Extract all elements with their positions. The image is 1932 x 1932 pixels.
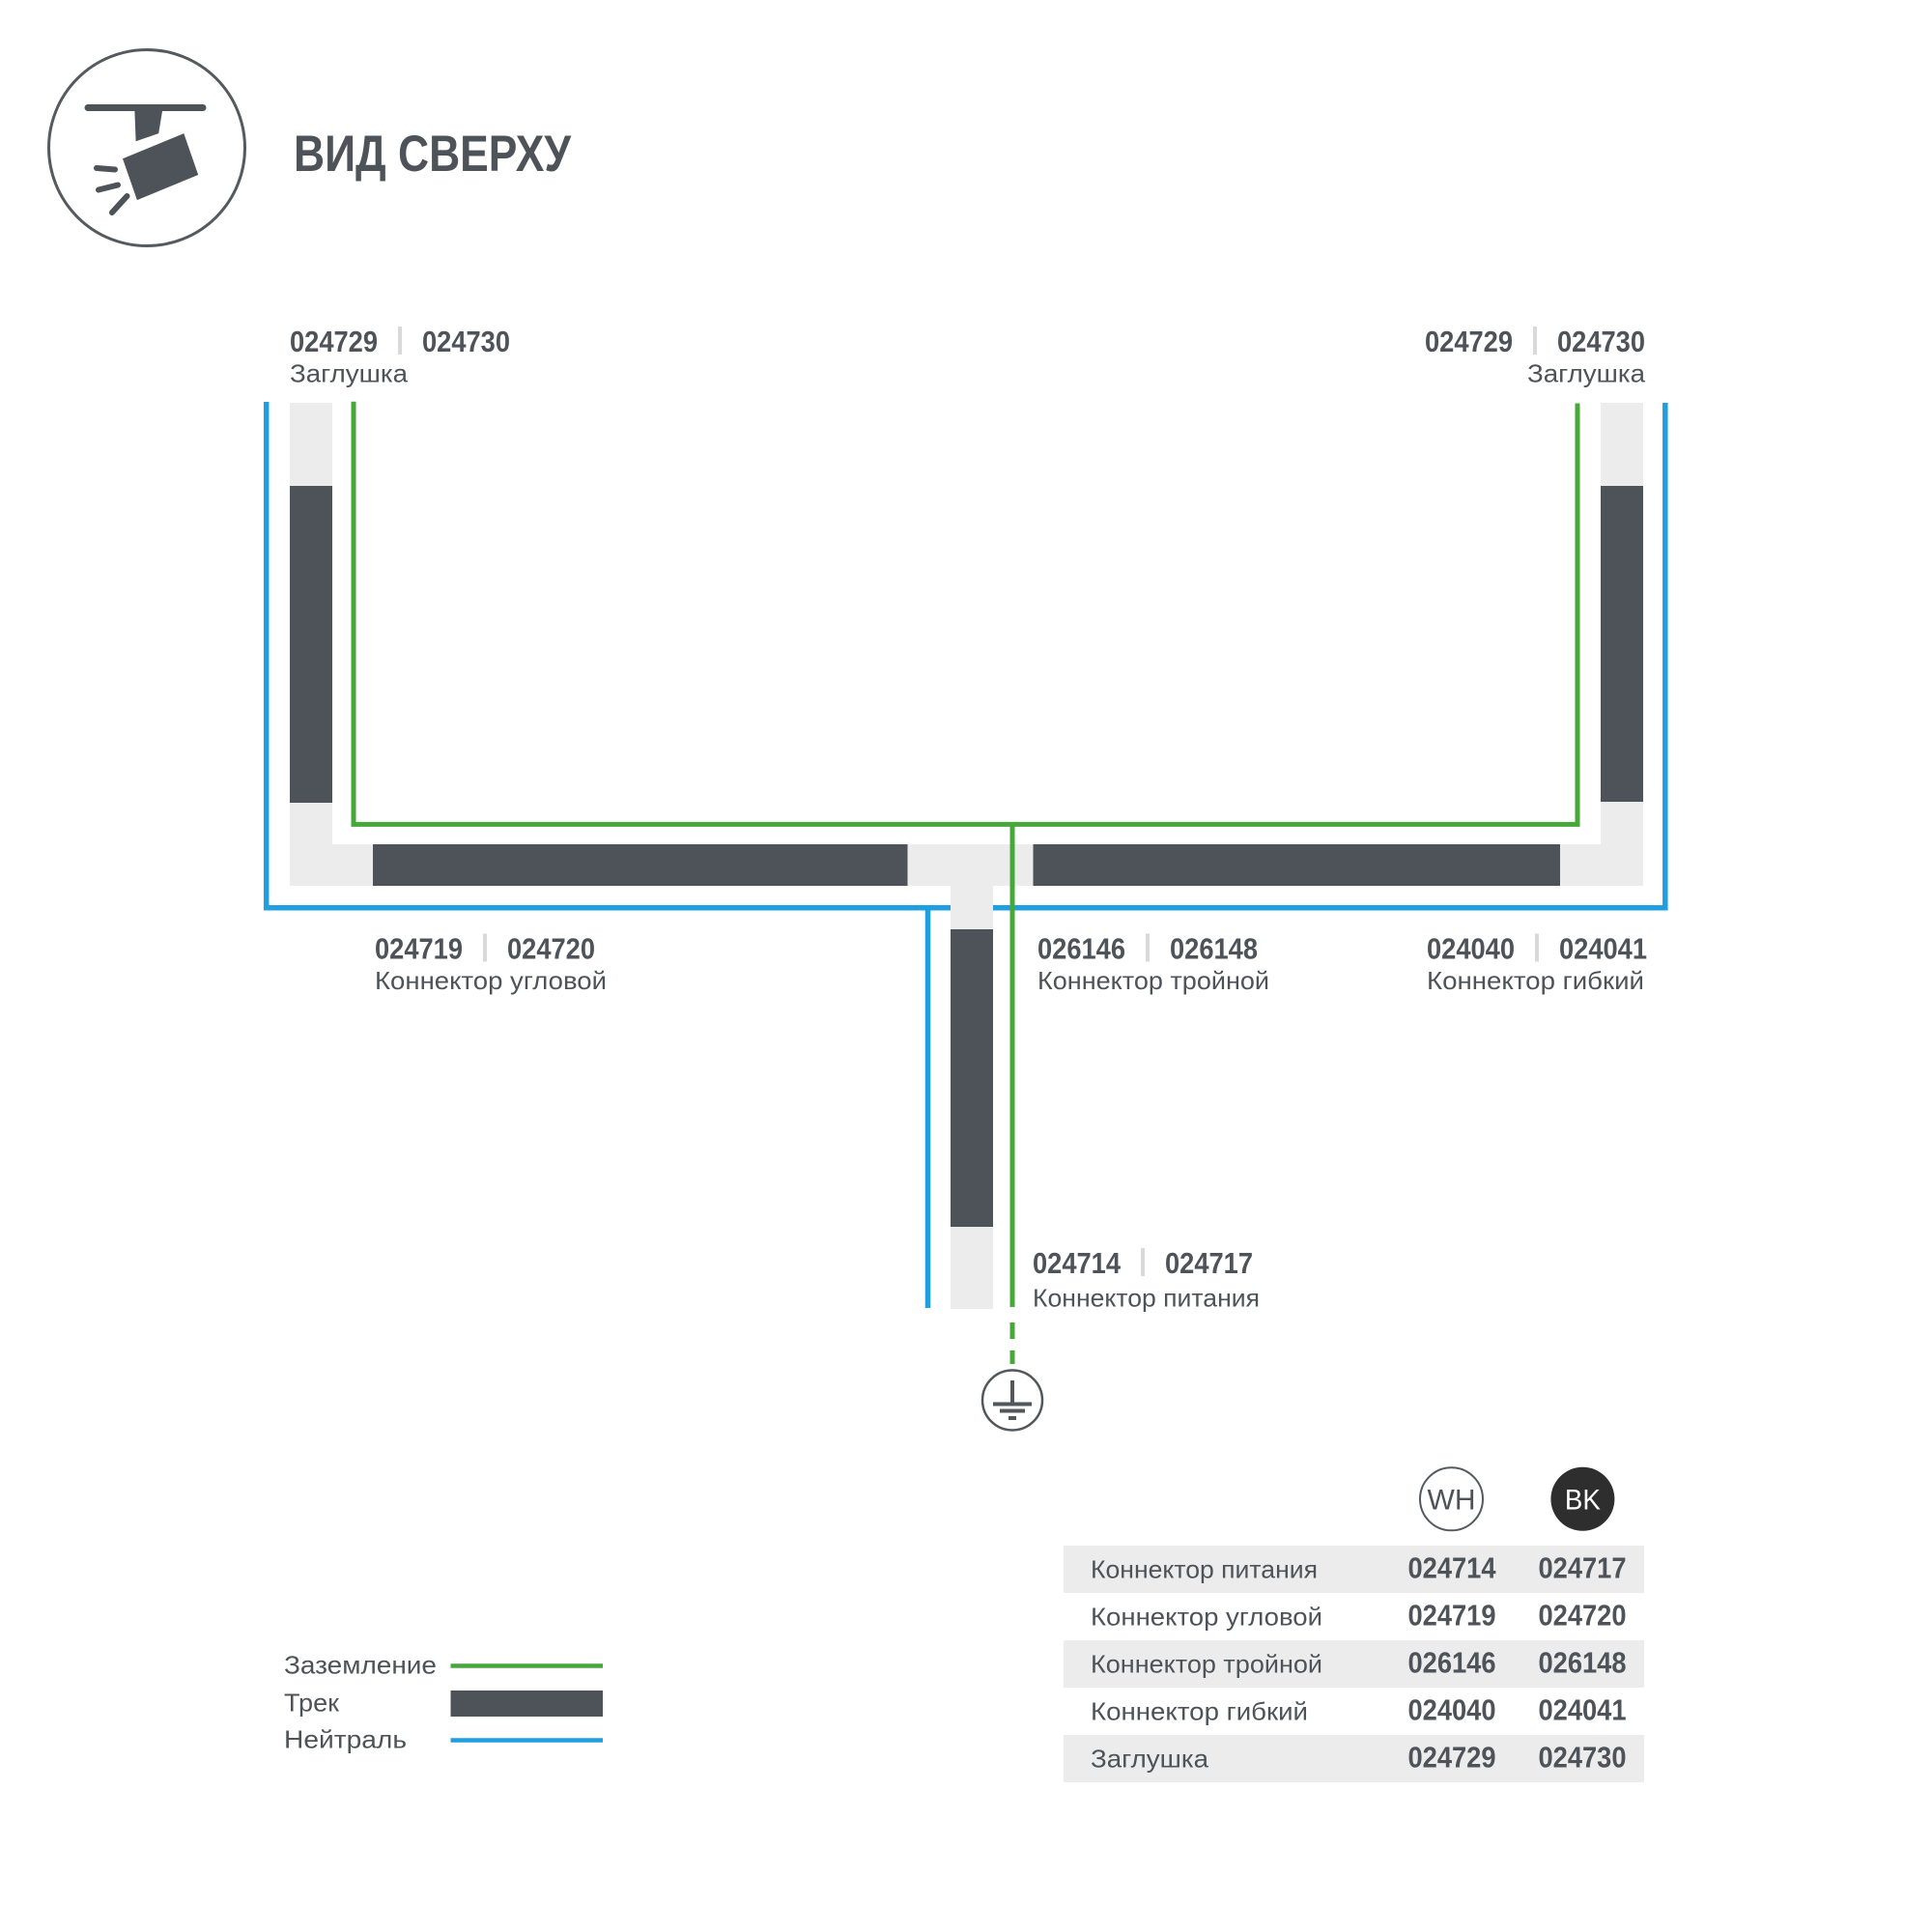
svg-text:024041: 024041: [1539, 1694, 1627, 1727]
svg-text:026148: 026148: [1170, 933, 1258, 966]
svg-text:Коннектор тройной: Коннектор тройной: [1091, 1650, 1322, 1679]
svg-text:024714: 024714: [1408, 1552, 1496, 1585]
svg-text:024730: 024730: [1539, 1742, 1627, 1775]
svg-text:024717: 024717: [1165, 1247, 1253, 1280]
svg-text:024720: 024720: [1539, 1600, 1627, 1633]
svg-text:Коннектор угловой: Коннектор угловой: [1091, 1603, 1322, 1632]
svg-text:Заземление: Заземление: [284, 1651, 437, 1680]
svg-text:024041: 024041: [1559, 933, 1647, 966]
svg-text:024729: 024729: [1425, 326, 1513, 358]
svg-text:024730: 024730: [1557, 326, 1645, 358]
svg-text:Нейтраль: Нейтраль: [284, 1725, 407, 1754]
svg-text:Заглушка: Заглушка: [290, 359, 409, 388]
svg-text:026148: 026148: [1539, 1647, 1627, 1680]
svg-text:BK: BK: [1565, 1485, 1601, 1517]
svg-text:024730: 024730: [422, 326, 510, 358]
svg-text:024717: 024717: [1539, 1552, 1627, 1585]
svg-text:026146: 026146: [1037, 933, 1125, 966]
svg-text:024719: 024719: [375, 933, 463, 966]
svg-text:Коннектор гибкий: Коннектор гибкий: [1427, 966, 1644, 995]
svg-text:024040: 024040: [1427, 933, 1515, 966]
svg-text:024729: 024729: [290, 326, 378, 358]
svg-text:024719: 024719: [1408, 1600, 1496, 1633]
svg-text:Заглушка: Заглушка: [1091, 1745, 1209, 1774]
svg-text:Коннектор гибкий: Коннектор гибкий: [1091, 1697, 1308, 1726]
svg-text:Трек: Трек: [284, 1689, 340, 1718]
svg-text:ВИД СВЕРХУ: ВИД СВЕРХУ: [294, 126, 572, 183]
svg-text:024714: 024714: [1033, 1247, 1121, 1280]
svg-text:Коннектор питания: Коннектор питания: [1091, 1555, 1318, 1584]
svg-text:WH: WH: [1428, 1485, 1476, 1517]
svg-text:026146: 026146: [1408, 1647, 1496, 1680]
svg-text:024720: 024720: [507, 933, 595, 966]
svg-text:024040: 024040: [1408, 1694, 1496, 1727]
svg-text:Коннектор тройной: Коннектор тройной: [1037, 966, 1269, 995]
svg-text:Заглушка: Заглушка: [1527, 359, 1646, 388]
svg-text:Коннектор питания: Коннектор питания: [1033, 1284, 1260, 1313]
svg-text:024729: 024729: [1408, 1742, 1496, 1775]
svg-text:Коннектор угловой: Коннектор угловой: [375, 966, 607, 995]
